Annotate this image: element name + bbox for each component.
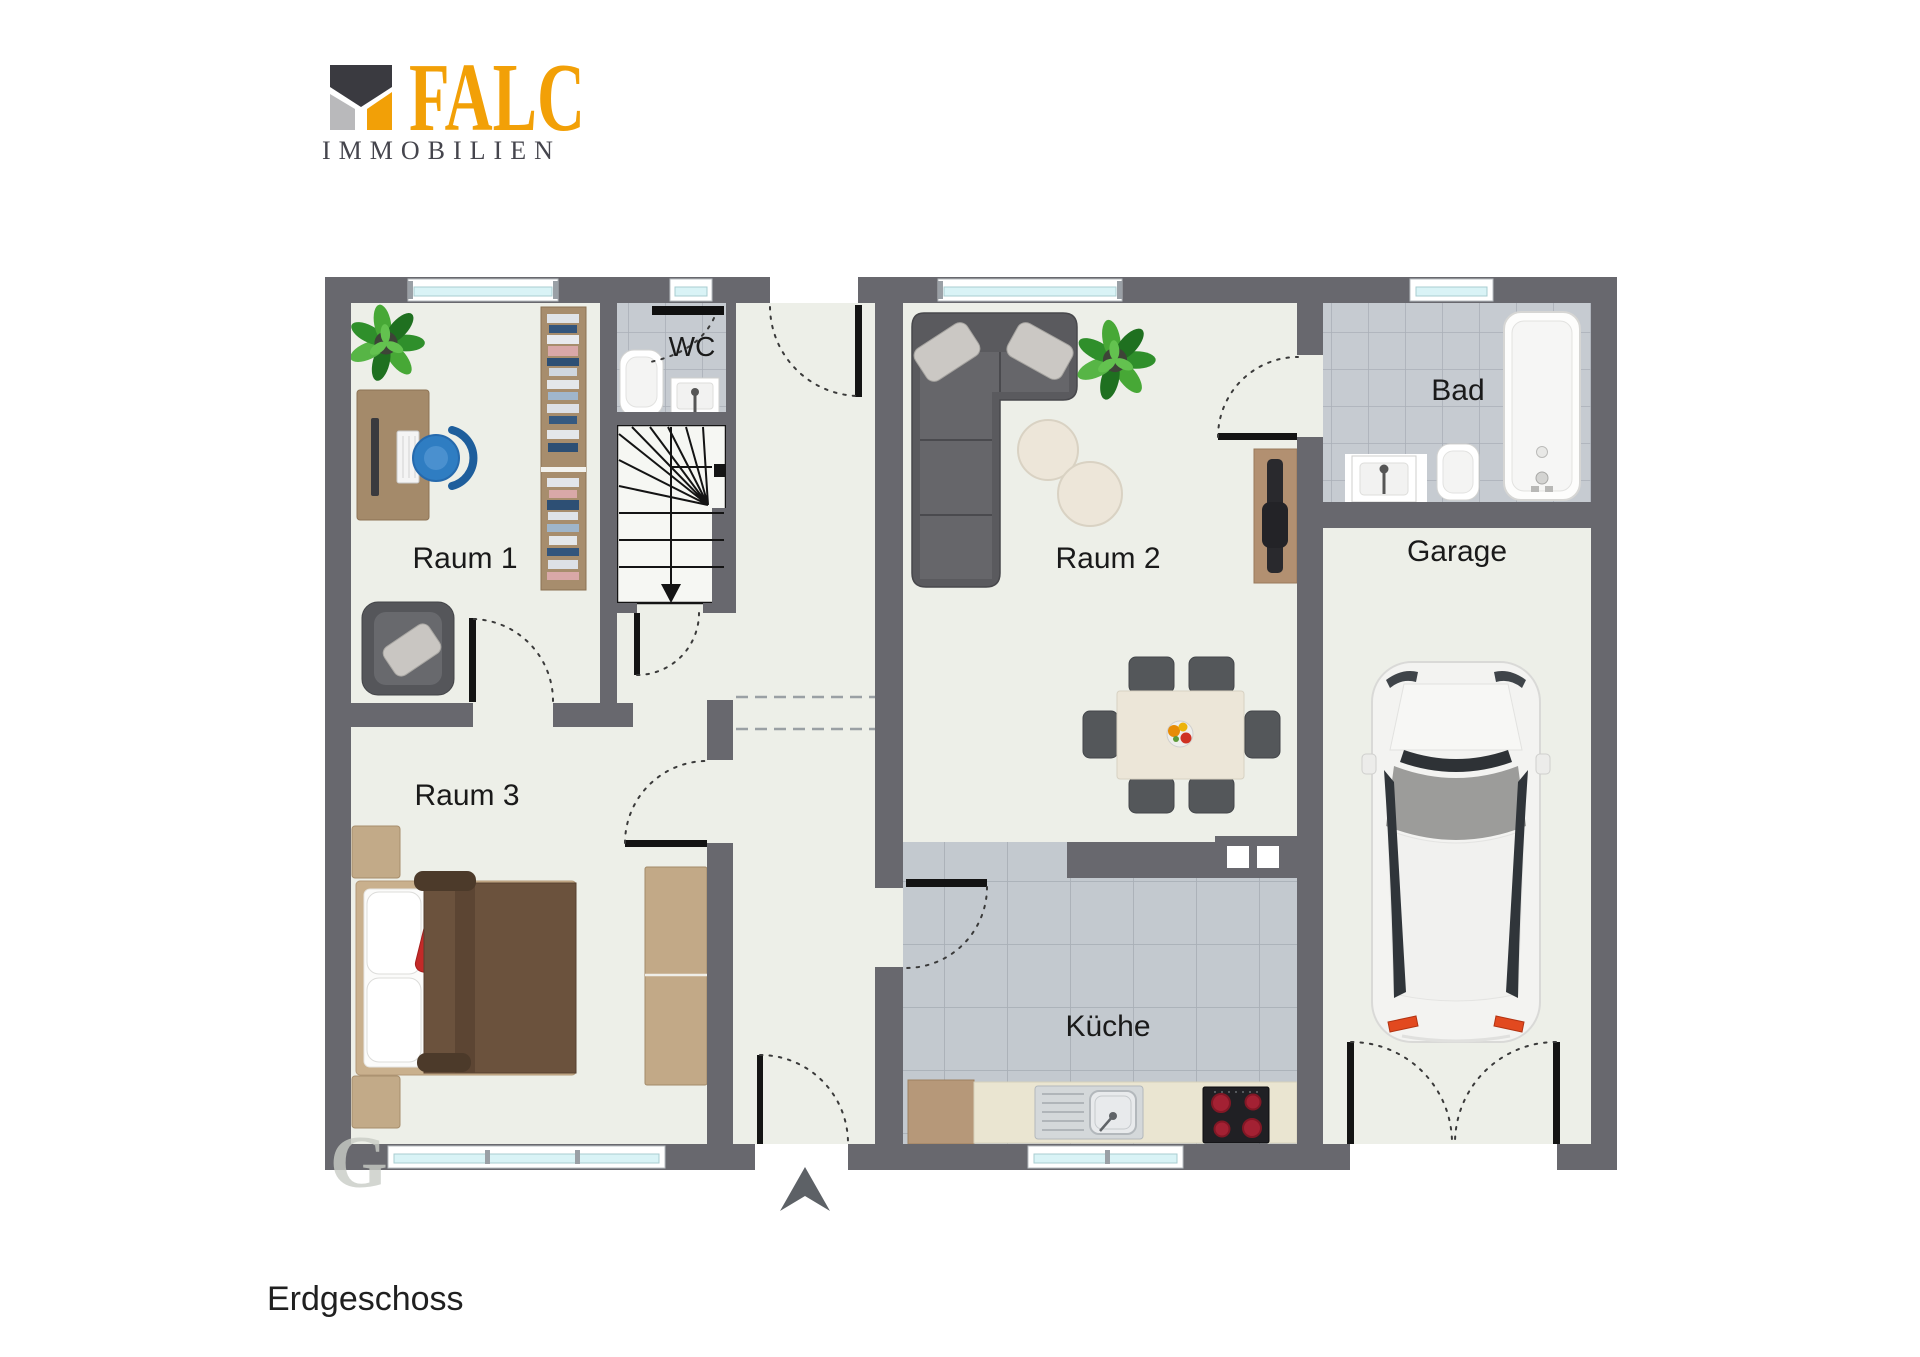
- stove-icon: [1203, 1087, 1269, 1143]
- pillow: [367, 892, 421, 974]
- label-garage: Garage: [1407, 535, 1507, 568]
- door-opening-top: [770, 277, 858, 303]
- car-icon: [1362, 662, 1550, 1042]
- staircase: [617, 425, 727, 603]
- floorplan-page: FALC IMMOBILIEN: [0, 0, 1920, 1357]
- wc-sink-icon: [671, 378, 719, 414]
- dining-chair: [1189, 777, 1234, 813]
- chimney-shaft: [1215, 836, 1297, 878]
- floor-title: Erdgeschoss: [267, 1280, 464, 1318]
- nightstand: [352, 826, 400, 878]
- dining-chair: [1129, 657, 1174, 693]
- label-raum1: Raum 1: [412, 542, 517, 575]
- sideboard-tv: [1254, 449, 1297, 583]
- monitor-icon: [371, 418, 379, 496]
- toilet-icon: [1437, 444, 1479, 500]
- falc-logo-icon: [330, 65, 392, 130]
- window-raum1: [408, 279, 558, 301]
- window-raum2: [938, 279, 1122, 301]
- watermark: G: [330, 1122, 388, 1204]
- north-arrow-icon: [780, 1167, 830, 1211]
- fruit-bowl-icon: [1167, 721, 1193, 747]
- window-bad: [1410, 279, 1493, 301]
- room-kueche: [908, 1080, 1297, 1144]
- window-raum3: [388, 1146, 665, 1168]
- label-raum2: Raum 2: [1055, 542, 1160, 575]
- label-bad: Bad: [1431, 374, 1484, 407]
- round-side-table: [1058, 462, 1122, 526]
- brand-subtitle: IMMOBILIEN: [322, 136, 561, 165]
- wall-right: [1591, 277, 1617, 1170]
- falc-logo: FALC IMMOBILIEN: [322, 44, 585, 165]
- window-kueche: [1028, 1146, 1183, 1168]
- counter-wood-section: [908, 1080, 974, 1144]
- wall-left: [325, 277, 351, 1170]
- side-mirror: [1362, 754, 1376, 774]
- dining-chair: [1129, 777, 1174, 813]
- kitchen-sink-icon: [1035, 1086, 1143, 1139]
- bookshelf: [541, 307, 586, 590]
- room-garage: [1362, 662, 1550, 1042]
- side-mirror: [1536, 754, 1550, 774]
- label-wc: WC: [669, 331, 716, 362]
- armchair: [362, 602, 454, 695]
- dining-chair: [1189, 657, 1234, 693]
- pillow: [367, 978, 421, 1062]
- dining-chair: [1245, 711, 1280, 758]
- blanket: [424, 883, 576, 1073]
- label-raum3: Raum 3: [414, 779, 519, 812]
- toilet-icon: [620, 350, 663, 416]
- label-kueche: Küche: [1065, 1010, 1150, 1043]
- dining-chair: [1083, 711, 1118, 758]
- wardrobe: [645, 867, 707, 1085]
- door-opening-entrance: [755, 1144, 848, 1170]
- window-wc: [670, 279, 712, 301]
- door-opening-garage: [1350, 1144, 1557, 1170]
- double-bed: [356, 871, 576, 1075]
- bath-sink-icon: [1345, 454, 1427, 502]
- nightstand: [352, 1076, 400, 1128]
- books: [547, 314, 579, 580]
- brand-text: FALC: [409, 44, 585, 151]
- bathtub-icon: [1504, 312, 1580, 500]
